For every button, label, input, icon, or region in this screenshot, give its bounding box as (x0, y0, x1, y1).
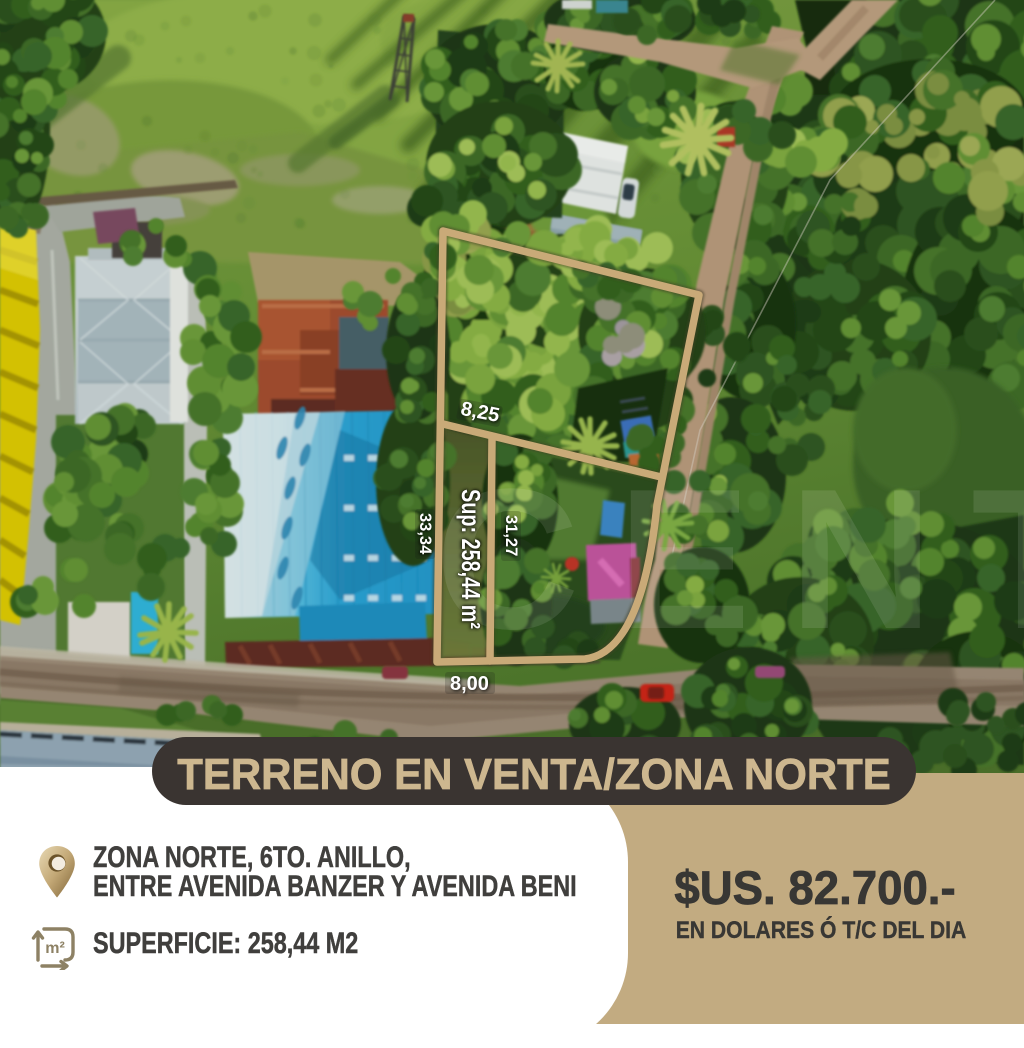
svg-text:8,00: 8,00 (450, 673, 489, 695)
svg-text:31,27: 31,27 (502, 515, 520, 556)
svg-text:m²: m² (45, 940, 65, 957)
svg-text:33,34: 33,34 (416, 513, 434, 555)
svg-text:Sup: 258,44 m²: Sup: 258,44 m² (456, 489, 486, 629)
